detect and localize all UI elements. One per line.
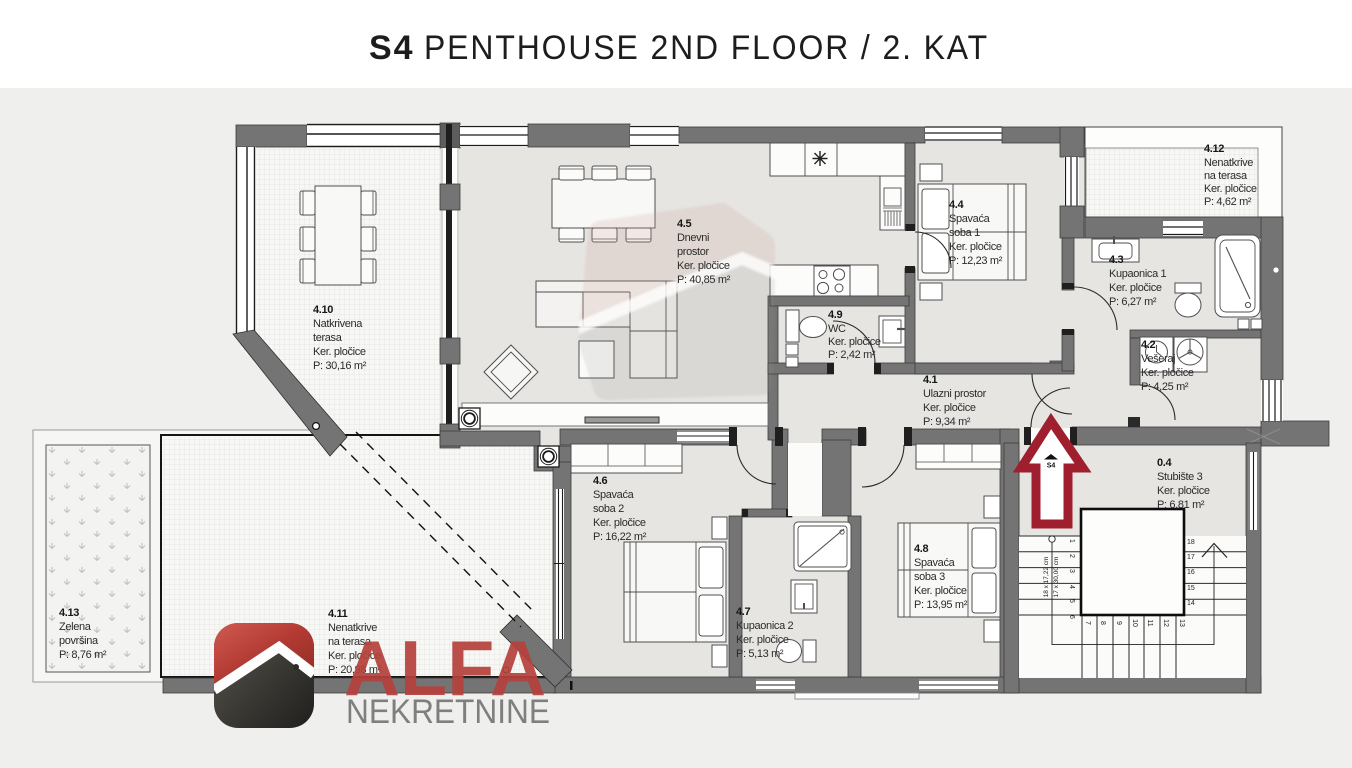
svg-text:4: 4 (1068, 585, 1075, 589)
svg-text:P: 4,25 m²: P: 4,25 m² (1141, 381, 1189, 393)
svg-text:4.2: 4.2 (1141, 339, 1155, 351)
svg-text:Ker. pločice: Ker. pločice (828, 336, 881, 348)
svg-text:Ker. pločice: Ker. pločice (677, 260, 730, 272)
svg-text:Ker. pločice: Ker. pločice (1157, 485, 1210, 497)
svg-text:prostor: prostor (677, 246, 709, 258)
svg-text:Kupaonica 2: Kupaonica 2 (736, 620, 794, 632)
svg-text:4.9: 4.9 (828, 309, 842, 321)
svg-text:4.4: 4.4 (949, 199, 964, 211)
svg-text:Ker. pločice: Ker. pločice (923, 402, 976, 414)
svg-text:P: 5,13 m²: P: 5,13 m² (736, 648, 784, 660)
svg-text:površina: površina (59, 635, 99, 647)
svg-text:P: 6,81 m²: P: 6,81 m² (1157, 499, 1205, 511)
svg-text:na terasa: na terasa (1204, 170, 1248, 182)
svg-text:NEKRETNINE: NEKRETNINE (346, 693, 550, 731)
svg-text:13: 13 (1178, 619, 1185, 627)
svg-text:10: 10 (1131, 619, 1138, 627)
svg-text:Spavaća: Spavaća (949, 213, 991, 225)
svg-text:Zelena: Zelena (59, 621, 92, 633)
svg-text:Ker. pločice: Ker. pločice (914, 585, 967, 597)
svg-text:WC: WC (828, 323, 846, 335)
svg-text:2: 2 (1068, 554, 1075, 558)
svg-text:0.4: 0.4 (1157, 457, 1172, 469)
svg-text:4.5: 4.5 (677, 218, 691, 230)
svg-text:Natkrivena: Natkrivena (313, 318, 363, 330)
svg-text:15: 15 (1187, 585, 1195, 592)
svg-text:S4: S4 (369, 29, 415, 67)
svg-text:P: 2,42 m²: P: 2,42 m² (828, 349, 876, 361)
svg-text:4.12: 4.12 (1204, 143, 1224, 155)
svg-text:16: 16 (1187, 569, 1195, 576)
svg-text:soba 1: soba 1 (949, 227, 980, 239)
svg-text:9: 9 (1115, 621, 1122, 625)
svg-text:Ker. pločice: Ker. pločice (1141, 367, 1194, 379)
svg-text:Ker. pločice: Ker. pločice (593, 517, 646, 529)
svg-text:4.3: 4.3 (1109, 254, 1123, 266)
svg-text:Kupaonica 1: Kupaonica 1 (1109, 268, 1167, 280)
svg-text:4.11: 4.11 (328, 608, 348, 620)
svg-text:Ker. pločice: Ker. pločice (736, 634, 789, 646)
svg-text:12: 12 (1162, 619, 1169, 627)
svg-text:Ker. pločice: Ker. pločice (949, 241, 1002, 253)
svg-text:4.13: 4.13 (59, 607, 79, 619)
svg-text:Dnevni: Dnevni (677, 232, 709, 244)
svg-text:terasa: terasa (313, 332, 343, 344)
svg-text:Spavaća: Spavaća (914, 557, 956, 569)
svg-text:P: 4,62 m²: P: 4,62 m² (1204, 196, 1252, 208)
svg-text:11: 11 (1146, 619, 1153, 626)
svg-text:P: 6,27 m²: P: 6,27 m² (1109, 296, 1157, 308)
svg-text:17: 17 (1187, 554, 1195, 561)
svg-text:18: 18 (1187, 539, 1195, 546)
svg-text:6: 6 (1068, 615, 1075, 619)
svg-text:P: 9,34 m²: P: 9,34 m² (923, 416, 971, 428)
svg-text:PENTHOUSE 2ND FLOOR / 2. KAT: PENTHOUSE 2ND FLOOR / 2. KAT (424, 29, 989, 67)
svg-text:4.8: 4.8 (914, 543, 928, 555)
svg-text:3: 3 (1068, 569, 1075, 573)
svg-text:P: 30,16 m²: P: 30,16 m² (313, 360, 367, 372)
svg-text:Vešeraj: Vešeraj (1141, 353, 1175, 365)
svg-text:P: 16,22 m²: P: 16,22 m² (593, 531, 647, 543)
svg-text:18 x 17,22 cm: 18 x 17,22 cm (1043, 557, 1050, 598)
svg-text:P: 12,23 m²: P: 12,23 m² (949, 255, 1003, 267)
svg-text:P: 13,95 m²: P: 13,95 m² (914, 599, 968, 611)
svg-text:8: 8 (1099, 621, 1106, 625)
svg-text:4.6: 4.6 (593, 475, 607, 487)
svg-text:Ulazni prostor: Ulazni prostor (923, 388, 987, 400)
svg-text:7: 7 (1084, 621, 1091, 625)
svg-text:P: 40,85 m²: P: 40,85 m² (677, 274, 731, 286)
svg-text:Nenatkrive: Nenatkrive (1204, 157, 1253, 169)
svg-text:Ker. pločice: Ker. pločice (313, 346, 366, 358)
svg-text:Stubište 3: Stubište 3 (1157, 471, 1203, 483)
svg-text:4.1: 4.1 (923, 374, 937, 386)
svg-text:Ker. pločice: Ker. pločice (1204, 183, 1257, 195)
svg-text:4.10: 4.10 (313, 304, 333, 316)
svg-text:P: 8,76 m²: P: 8,76 m² (59, 649, 107, 661)
svg-text:soba 2: soba 2 (593, 503, 624, 515)
svg-text:4.7: 4.7 (736, 606, 750, 618)
svg-text:1: 1 (1068, 539, 1075, 543)
svg-text:14: 14 (1187, 600, 1195, 607)
svg-text:17 x 30,00 cm: 17 x 30,00 cm (1053, 557, 1060, 598)
svg-text:5: 5 (1068, 599, 1075, 603)
svg-text:S4: S4 (1047, 463, 1056, 470)
svg-text:soba 3: soba 3 (914, 571, 945, 583)
svg-text:Spavaća: Spavaća (593, 489, 635, 501)
svg-text:Ker. pločice: Ker. pločice (1109, 282, 1162, 294)
